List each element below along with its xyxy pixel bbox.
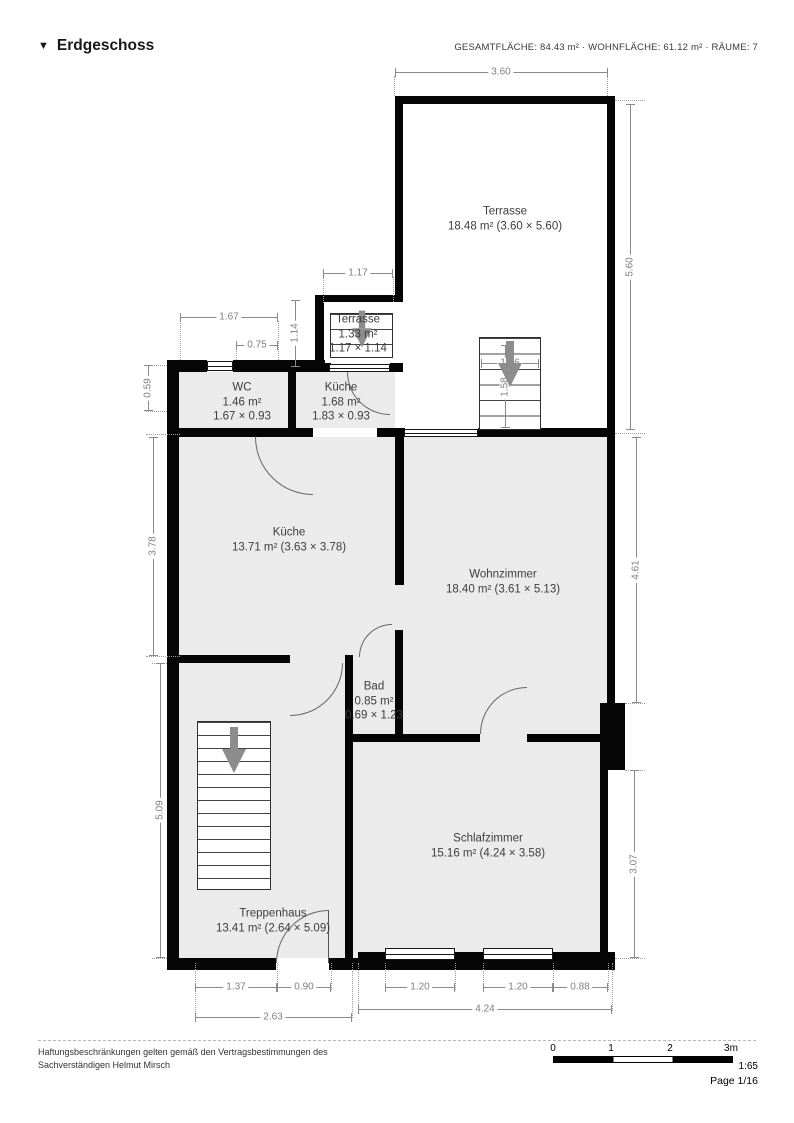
extension-line — [152, 958, 167, 959]
window — [329, 364, 390, 372]
room-size: 0.69 × 1.23 — [345, 708, 403, 723]
dimension-label: 5.09 — [155, 797, 166, 822]
room-label-schlafzimmer: Schlafzimmer 15.16 m² (4.24 × 3.58) — [431, 832, 545, 861]
dimension-label: 4.61 — [631, 557, 642, 582]
scale-bar — [553, 1056, 733, 1063]
dimension-label: 0.88 — [567, 982, 592, 993]
wall-segment — [233, 360, 325, 372]
wall-segment — [600, 770, 608, 958]
dimension-label: 2.63 — [260, 1012, 285, 1023]
room-name: Bad — [345, 679, 403, 694]
floor-plan-page: ▼ Erdgeschoss GESAMTFLÄCHE: 84.43 m² · W… — [0, 0, 794, 1123]
dimension-label: 0.90 — [291, 982, 316, 993]
disclaimer: Haftungsbeschränkungen gelten gemäß den … — [38, 1046, 328, 1072]
room-area: 18.40 m² (3.61 × 5.13) — [446, 582, 560, 597]
wall-segment — [167, 655, 290, 663]
room-name: Terrasse — [329, 312, 387, 327]
extension-line — [625, 703, 645, 704]
extension-line — [146, 434, 180, 435]
page-title: ▼ Erdgeschoss — [38, 37, 154, 55]
room-size: 1.67 × 0.93 — [213, 409, 271, 424]
extension-line — [358, 963, 359, 1011]
stairs-down-arrow-icon — [222, 727, 246, 773]
room-area: 18.48 m² (3.60 × 5.60) — [448, 219, 562, 234]
wall-segment — [527, 734, 607, 742]
dimension-label: 1.67 — [216, 312, 241, 323]
wall-segment — [167, 372, 179, 430]
room-area: 15.16 m² (4.24 × 3.58) — [431, 846, 545, 861]
dimension-label: 4.24 — [472, 1004, 497, 1015]
wall-segment — [395, 96, 403, 302]
room-label-kueche-klein: Küche 1.68 m² 1.83 × 0.93 — [312, 380, 370, 424]
room-name: Küche — [312, 380, 370, 395]
room-area: 1.33 m² — [329, 327, 387, 342]
window — [207, 361, 233, 371]
room-area: 1.46 m² — [213, 395, 271, 410]
extension-line — [323, 277, 324, 303]
wall-segment — [607, 437, 615, 703]
wall-segment — [167, 428, 313, 437]
scale-ratio: 1:65 — [739, 1061, 758, 1072]
disclaimer-line: Sachverständigen Helmut Mirsch — [38, 1059, 328, 1072]
room-label-terrasse-klein: Terrasse 1.33 m² 1.17 × 1.14 — [329, 312, 387, 356]
dimension-label: 1.20 — [505, 982, 530, 993]
scalebar-tick: 2 — [667, 1043, 673, 1054]
room-area: 13.41 m² (2.64 × 5.09) — [216, 921, 330, 936]
extension-line — [236, 349, 237, 360]
room-label-terrasse: Terrasse 18.48 m² (3.60 × 5.60) — [448, 205, 562, 234]
extension-line — [393, 277, 394, 302]
room-area: 13.71 m² (3.63 × 3.78) — [232, 540, 346, 555]
extension-line — [146, 656, 180, 657]
footer-divider — [38, 1040, 756, 1041]
room-size: 1.17 × 1.14 — [329, 341, 387, 356]
stairs-down-arrow-icon — [498, 341, 522, 387]
window — [404, 429, 478, 437]
room-name: Terrasse — [448, 205, 562, 220]
scalebar-tick: 0 — [550, 1043, 556, 1054]
dimension-label: 3.78 — [148, 533, 159, 558]
page-number: Page 1/16 — [710, 1075, 758, 1087]
room-name: Küche — [232, 526, 346, 541]
extension-line — [394, 76, 395, 96]
disclaimer-line: Haftungsbeschränkungen gelten gemäß den … — [38, 1046, 328, 1059]
wall-segment — [288, 372, 296, 428]
dimension-label: 1.14 — [290, 320, 301, 345]
dimension-label: 3.07 — [629, 851, 640, 876]
scalebar-tick: 3m — [724, 1043, 738, 1054]
room-label-bad: Bad 0.85 m² 0.69 × 1.23 — [345, 679, 403, 723]
dimension-label: 1.37 — [223, 982, 248, 993]
wall-segment — [377, 428, 405, 437]
wall-segment — [167, 430, 179, 970]
window — [385, 948, 455, 960]
dimension-label: 1.20 — [407, 982, 432, 993]
room-label-treppenhaus: Treppenhaus 13.41 m² (2.64 × 5.09) — [216, 907, 330, 936]
area-stats: GESAMTFLÄCHE: 84.43 m² · WOHNFLÄCHE: 61.… — [454, 42, 758, 53]
extension-line — [352, 963, 353, 1018]
room-label-wc: WC 1.46 m² 1.67 × 0.93 — [213, 380, 271, 424]
wall-segment — [390, 363, 403, 372]
room-name: Treppenhaus — [216, 907, 330, 922]
extension-line — [331, 963, 332, 990]
dimension-label: 5.60 — [625, 254, 636, 279]
wall-segment — [167, 360, 207, 372]
wall-segment — [395, 96, 615, 104]
scalebar-tick: 1 — [608, 1043, 614, 1054]
room-name: WC — [213, 380, 271, 395]
room-area: 1.68 m² — [312, 395, 370, 410]
section-marker-icon: ▼ — [38, 41, 49, 52]
wall-segment — [329, 958, 358, 970]
wall-segment — [395, 437, 404, 585]
dimension-label: 0.59 — [143, 375, 154, 400]
dimension-label: 3.60 — [488, 67, 513, 78]
wall-segment — [345, 734, 480, 742]
dimension-label: 1.17 — [345, 268, 370, 279]
room-name: Wohnzimmer — [446, 568, 560, 583]
room-name: Schlafzimmer — [431, 832, 545, 847]
window — [483, 948, 553, 960]
room-area: 0.85 m² — [345, 694, 403, 709]
extension-line — [278, 321, 279, 360]
wall-segment — [607, 96, 615, 437]
wall-segment — [600, 703, 625, 770]
extension-line — [615, 433, 645, 434]
extension-line — [608, 963, 609, 990]
extension-line — [607, 76, 608, 96]
extension-line — [146, 411, 167, 412]
extension-line — [180, 321, 181, 360]
extension-line — [612, 963, 613, 1011]
room-label-kueche: Küche 13.71 m² (3.63 × 3.78) — [232, 526, 346, 555]
room-size: 1.83 × 0.93 — [312, 409, 370, 424]
extension-line — [615, 958, 645, 959]
floor-name: Erdgeschoss — [57, 37, 154, 55]
dimension-label: 0.75 — [244, 340, 269, 351]
wall-segment — [167, 958, 276, 970]
extension-line — [615, 100, 645, 101]
room-label-wohnzimmer: Wohnzimmer 18.40 m² (3.61 × 5.13) — [446, 568, 560, 597]
wall-segment — [315, 295, 403, 302]
extension-line — [455, 963, 456, 990]
